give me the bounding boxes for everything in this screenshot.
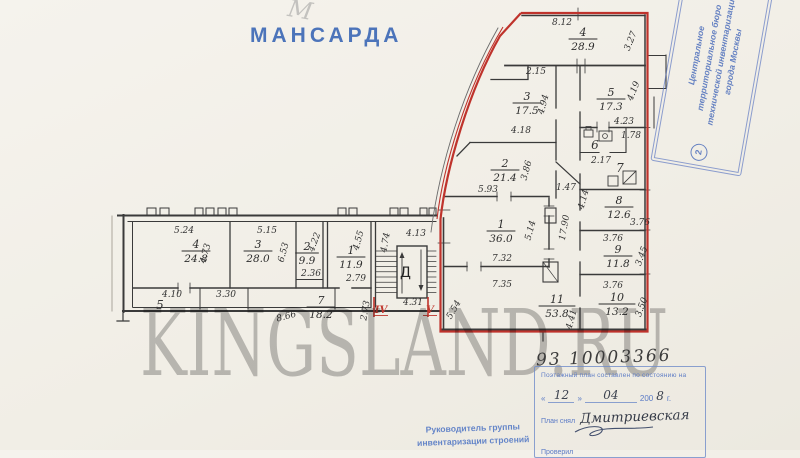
dimension-label: 7.32 [492,254,512,264]
room-label: 911.8 [604,243,633,270]
dimension-label: 3.76 [630,218,650,228]
svg-text:11.9: 11.9 [339,259,363,271]
stamp-text: Центральное территориальное бюро техниче… [676,0,753,142]
pencil-note: М [286,0,315,26]
handwritten-day: 12 [548,388,574,403]
stairwell-letter: Д [400,265,411,281]
dimension-label: 2.17 [590,156,611,166]
dimension-label: 4.94 [536,93,551,116]
dimension-label: 3.76 [603,234,623,244]
svg-text:21.4: 21.4 [492,172,516,184]
toilet-symbol [584,130,593,137]
dimension-label: 4.13 [405,229,426,239]
dimension-label: 2.36 [300,269,321,279]
stamp-number-badge: 2 [689,142,709,162]
room-label: 136.0 [487,218,516,245]
dimension-label: 5.15 [257,226,277,236]
dimension-label: 4.23 [613,117,634,127]
svg-text:3: 3 [255,238,262,251]
sink-symbol [608,176,618,186]
room-label: 517.3 [597,86,626,113]
date-row: « 12 » 04 200 8 г. [541,388,699,403]
window-symbols [147,208,436,215]
svg-text:28.0: 28.0 [245,253,270,265]
room-label: 328.0 [244,238,273,265]
dimension-label: 4.18 [510,126,531,136]
date-stamp-box: Поэтажный план составлен по состоянию на… [534,366,706,458]
surveyor-signature-name: Дмитриевская [580,407,690,427]
dimension-label: 6.53 [277,241,292,263]
footer-role-text: Руководитель группы инвентаризации строе… [398,419,549,450]
svg-text:36.0: 36.0 [489,233,513,245]
svg-text:2: 2 [501,157,509,170]
scanned-floor-plan-document: { "page": { "title": "МАНСАРДА", "pencil… [0,0,800,450]
svg-text:4: 4 [579,26,587,39]
svg-text:28.9: 28.9 [570,41,595,53]
dimension-label: 1.78 [621,131,641,141]
handwritten-year-digit: 8 [656,389,664,403]
handwritten-month: 04 [585,388,637,403]
svg-text:11.8: 11.8 [606,258,630,270]
dimension-label: 3.27 [623,30,640,53]
sink-symbol [599,131,612,141]
dimension-label: 4.14 [576,188,591,211]
dimension-label: 2.79 [345,274,366,284]
shaft-symbol [545,208,556,223]
svg-text:5: 5 [608,86,615,99]
dimension-label: 5.24 [174,226,194,236]
room-label: 428.9 [569,26,598,53]
svg-text:9: 9 [615,243,622,256]
svg-text:9.9: 9.9 [299,255,316,267]
svg-text:17.5: 17.5 [515,105,539,117]
date-stamp-header: Поэтажный план составлен по состоянию на [541,372,699,379]
checker-label: Проверил [541,449,699,456]
dimension-label: 6 [591,138,599,152]
dimension-label: 5.14 [524,219,539,241]
dimension-label: 5.93 [478,185,498,195]
dimension-label: 3.86 [520,159,535,181]
svg-text:4: 4 [192,238,200,251]
svg-text:17.3: 17.3 [599,101,623,113]
page-title: МАНСАРДА [250,24,402,48]
dimension-label: 4.19 [625,80,642,104]
svg-text:1: 1 [498,218,505,231]
surveyor-row: План снял Дмитриевская [541,409,699,425]
dimension-label: 4.55 [351,229,366,252]
dimension-label: 4.22 [307,231,324,254]
dimension-label: 2.15 [525,67,546,77]
svg-text:3: 3 [524,90,531,103]
room-label: 812.6 [605,194,634,221]
dimension-label: 4.73 [198,242,213,265]
dimension-label: 1.47 [556,183,576,193]
dimension-label: 7.35 [492,280,512,290]
dimension-label: 8.12 [552,18,572,28]
room-label: 221.4 [491,157,520,184]
svg-text:12.6: 12.6 [607,209,631,221]
dimension-label: 17.90 [558,214,572,241]
dimension-label: 7 [616,161,624,175]
svg-text:8: 8 [616,194,623,207]
